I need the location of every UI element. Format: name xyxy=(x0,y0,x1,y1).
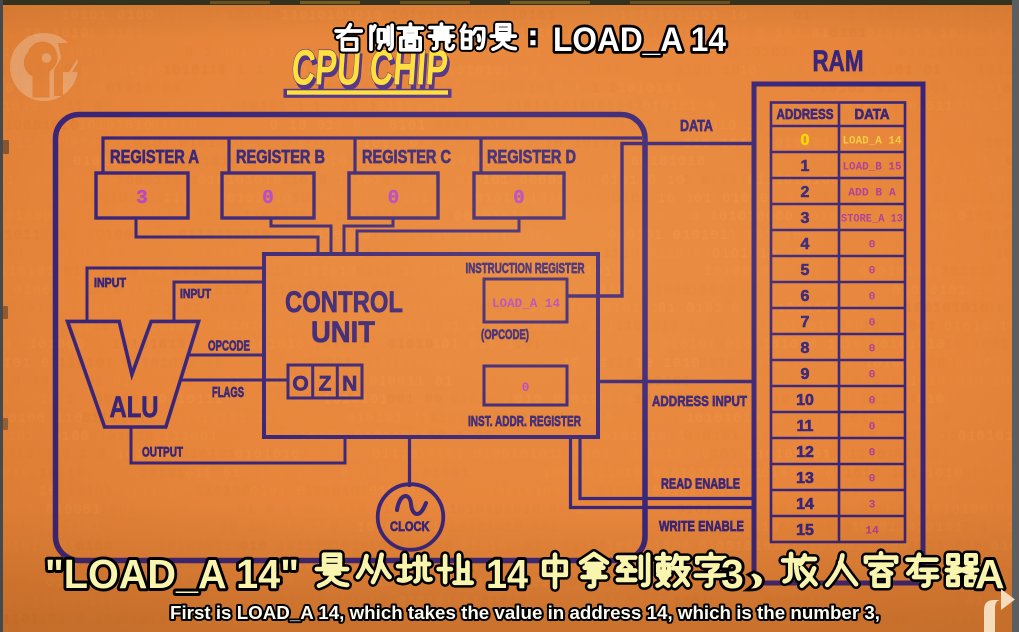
svg-text:14: 14 xyxy=(486,551,528,597)
svg-text:First is LOAD_A 14, which take: First is LOAD_A 14, which takes the valu… xyxy=(170,602,880,623)
svg-text:LOAD_A 14: LOAD_A 14 xyxy=(553,21,726,59)
svg-text:"LOAD_A 14": "LOAD_A 14" xyxy=(45,551,299,597)
svg-text:3: 3 xyxy=(721,551,744,597)
